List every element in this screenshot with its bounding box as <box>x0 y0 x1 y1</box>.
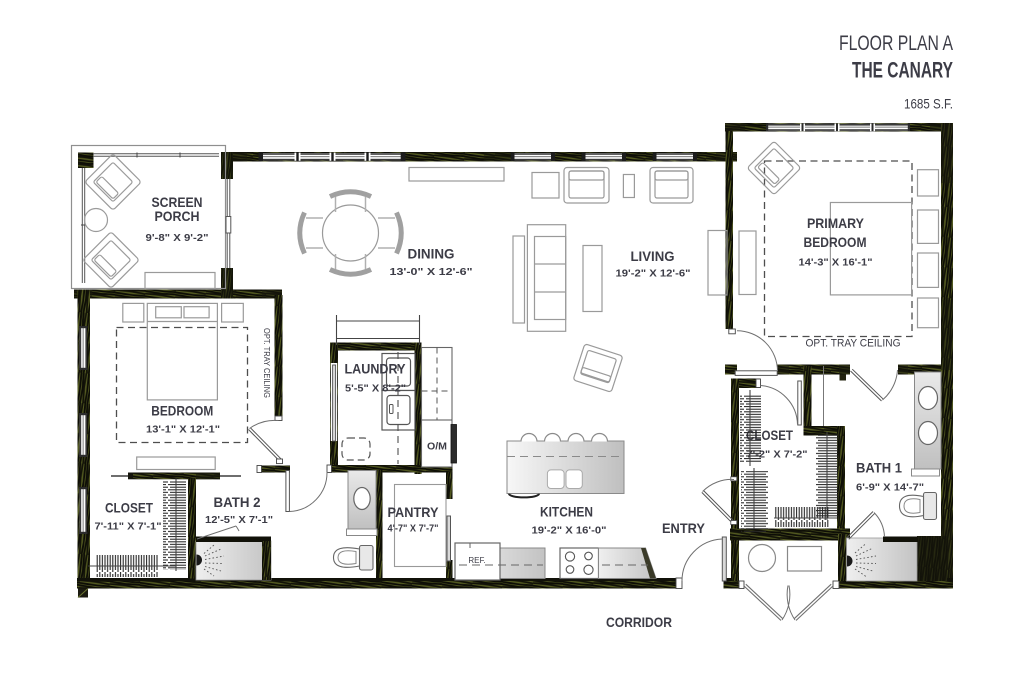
svg-text:PRIMARY: PRIMARY <box>807 215 865 231</box>
svg-text:6'-9" X 14'-7": 6'-9" X 14'-7" <box>856 482 924 494</box>
svg-text:19'-2" X 16'-0": 19'-2" X 16'-0" <box>532 525 607 537</box>
svg-text:REF.: REF. <box>468 556 485 565</box>
svg-text:4'-7" X 7'-7": 4'-7" X 7'-7" <box>388 523 439 535</box>
svg-text:12'-5" X 7'-1": 12'-5" X 7'-1" <box>205 514 273 526</box>
svg-text:7'-11" X 7'-1": 7'-11" X 7'-1" <box>95 521 162 533</box>
svg-text:1685 S.F.: 1685 S.F. <box>904 97 953 112</box>
svg-text:5'-5" X 8'-2": 5'-5" X 8'-2" <box>345 383 406 395</box>
svg-text:OPT. TRAY CEILING: OPT. TRAY CEILING <box>262 328 272 398</box>
svg-text:BATH 2: BATH 2 <box>214 494 261 510</box>
svg-text:14'-3" X 16'-1": 14'-3" X 16'-1" <box>799 257 873 269</box>
svg-text:OPT. TRAY CEILING: OPT. TRAY CEILING <box>806 338 901 350</box>
svg-text:ENTRY: ENTRY <box>662 520 706 536</box>
svg-text:LAUNDRY: LAUNDRY <box>345 361 407 377</box>
svg-text:O/M: O/M <box>427 442 447 453</box>
svg-text:CORRIDOR: CORRIDOR <box>606 614 672 630</box>
svg-text:BATH 1: BATH 1 <box>856 460 902 476</box>
svg-text:13'-0" X 12'-6": 13'-0" X 12'-6" <box>390 266 473 278</box>
svg-text:CLOSET: CLOSET <box>105 500 153 516</box>
svg-text:LIVING: LIVING <box>631 248 675 264</box>
svg-text:THE CANARY: THE CANARY <box>852 58 953 83</box>
svg-text:FLOOR PLAN A: FLOOR PLAN A <box>839 31 953 55</box>
svg-text:13'-1" X 12'-1": 13'-1" X 12'-1" <box>146 424 220 436</box>
svg-text:BEDROOM: BEDROOM <box>151 403 213 419</box>
svg-text:BEDROOM: BEDROOM <box>804 234 867 250</box>
svg-text:PANTRY: PANTRY <box>388 504 440 520</box>
svg-text:DINING: DINING <box>408 246 455 262</box>
svg-text:19'-2" X 12'-6": 19'-2" X 12'-6" <box>616 268 691 280</box>
svg-text:KITCHEN: KITCHEN <box>540 504 593 520</box>
svg-text:9'-8" X 9'-2": 9'-8" X 9'-2" <box>146 232 209 244</box>
svg-text:PORCH: PORCH <box>155 208 200 224</box>
